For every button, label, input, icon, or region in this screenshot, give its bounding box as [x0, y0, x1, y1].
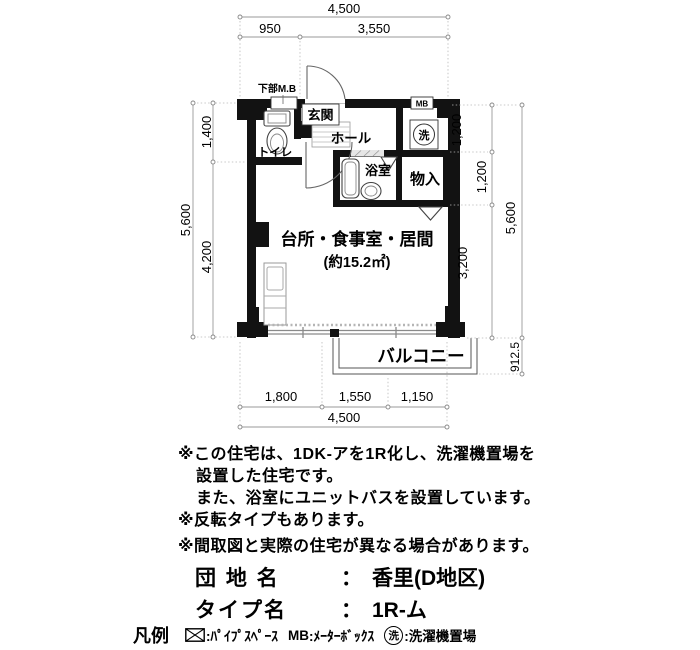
- lower-mb-label: 下部M.B: [258, 82, 296, 95]
- dimension-lines: [191, 15, 524, 429]
- dim-bottom-left: 1,800: [265, 389, 298, 404]
- room-label-entrance: 玄関: [307, 108, 333, 123]
- dim-balcony-depth: 912.5: [508, 342, 522, 372]
- dim-bottom-right: 1,150: [401, 389, 434, 404]
- legend-pipe-space-label: :ﾊﾟｲﾌﾟｽﾍﾟｰｽ: [206, 625, 278, 645]
- type-name-value: 1R-ム: [372, 594, 427, 624]
- legend-meter-box-prefix: MB: [288, 628, 309, 643]
- dim-top-total: 4,500: [328, 1, 361, 16]
- laundry-circle-icon: 洗: [384, 626, 403, 645]
- laundry-symbol-label: 洗: [419, 128, 430, 142]
- dim-left-lower: 4,200: [199, 241, 214, 274]
- estate-name-value: 香里(D地区): [372, 562, 485, 592]
- dim-bottom-mid: 1,550: [339, 389, 372, 404]
- meter-box-label: MB: [416, 100, 429, 109]
- type-name-colon: ：: [341, 594, 362, 624]
- room-label-main: 台所・食事室・居間: [281, 229, 434, 249]
- room-label-closet: 物入: [410, 170, 440, 188]
- legend-title: 凡例: [133, 622, 169, 648]
- legend-item-meter-box: MB :ﾒｰﾀｰﾎﾞｯｸｽ: [288, 625, 374, 645]
- laundry-space-symbol: 洗: [410, 120, 438, 149]
- legend-laundry-label: :洗濯機置場: [404, 625, 476, 645]
- kitchen-counter: [264, 263, 286, 325]
- pipe-space-box: [271, 97, 297, 109]
- room-label-balcony: バルコニー: [377, 346, 464, 366]
- legend-item-pipe-space: :ﾊﾟｲﾌﾟｽﾍﾟｰｽ: [185, 625, 278, 645]
- note-line-2: 設置した住宅です。: [196, 462, 343, 486]
- room-label-bath: 浴室: [365, 163, 391, 178]
- legend-item-laundry: 洗 :洗濯機置場: [384, 625, 476, 645]
- note-line-3: また、浴室にユニットバスを設置しています。: [196, 484, 540, 508]
- dim-top-left: 950: [259, 21, 281, 36]
- closet-door-mark: [419, 207, 442, 220]
- dim-bottom-total: 4,500: [328, 410, 361, 425]
- floorplan-page: MB: [0, 0, 700, 650]
- dim-top-right: 3,550: [358, 21, 391, 36]
- dim-right-total: 5,600: [503, 202, 518, 235]
- room-label-hall: ホール: [331, 131, 372, 146]
- dim-right-lower: 3,200: [455, 247, 470, 280]
- legend: 凡例 :ﾊﾟｲﾌﾟｽﾍﾟｰｽ MB :ﾒｰﾀｰﾎﾞｯｸｽ 洗 :洗濯機置場: [133, 622, 486, 648]
- note-line-4: ※反転タイプもあります。: [178, 506, 374, 530]
- dim-right-mid: 1,200: [474, 161, 489, 194]
- dim-left-upper: 1,400: [199, 116, 214, 149]
- type-name-row: タイプ名 ： 1R-ム: [195, 594, 427, 624]
- room-label-toilet: トイレ: [258, 146, 293, 159]
- washbasin: [361, 183, 381, 200]
- dimension-witness-lines: [197, 21, 518, 423]
- bathtub: [342, 159, 359, 198]
- type-name-label: タイプ名: [195, 594, 335, 624]
- dim-left-total: 5,600: [178, 204, 193, 237]
- pipe-space-icon: [185, 628, 205, 642]
- room-label-main-area: (約15.2㎡): [324, 253, 391, 271]
- note-line-1: ※この住宅は、1DK-アを1R化し、洗濯機置場を: [178, 440, 535, 464]
- dim-right-upper: 1,200: [449, 114, 464, 147]
- estate-name-row: 団 地 名 ： 香里(D地区): [195, 562, 485, 592]
- dimension-texts: 4,500 950 3,550 5,600 1,400 4,200 1,200 …: [178, 1, 522, 425]
- balcony: バルコニー: [333, 338, 477, 374]
- entrance-door-arc: [307, 66, 345, 99]
- estate-name-label: 団 地 名: [195, 562, 335, 592]
- note-line-5: ※間取図と実際の住宅が異なる場合があります。: [178, 532, 539, 556]
- south-window: [268, 325, 436, 338]
- floor-plan-drawing: MB: [0, 0, 700, 438]
- legend-meter-box-label: :ﾒｰﾀｰﾎﾞｯｸｽ: [309, 625, 374, 645]
- estate-name-colon: ：: [341, 562, 362, 592]
